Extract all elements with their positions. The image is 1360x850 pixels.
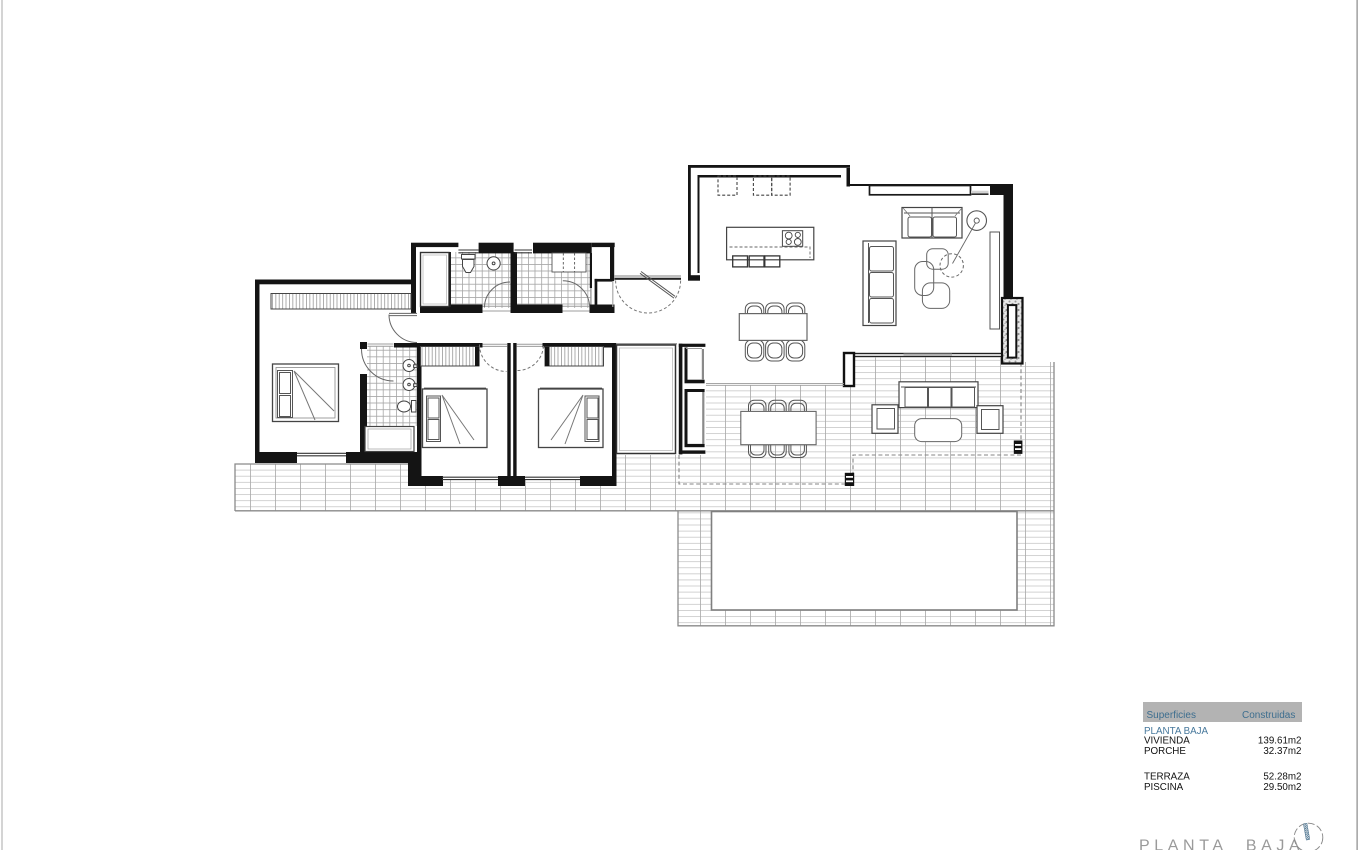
svg-text:32.37m2: 32.37m2 [1263, 746, 1301, 757]
svg-text:Superficies: Superficies [1147, 710, 1196, 721]
svg-text:29.50m2: 29.50m2 [1263, 782, 1301, 793]
svg-text:PORCHE: PORCHE [1144, 746, 1186, 757]
svg-text:Construidas: Construidas [1242, 710, 1295, 721]
svg-text:PLANTA BAJA: PLANTA BAJA [1139, 838, 1304, 850]
svg-text:VIVIENDA: VIVIENDA [1144, 736, 1190, 747]
svg-text:TERRAZA: TERRAZA [1144, 772, 1190, 783]
svg-text:PISCINA: PISCINA [1144, 782, 1184, 793]
svg-text:52.28m2: 52.28m2 [1263, 772, 1301, 783]
svg-text:139.61m2: 139.61m2 [1258, 736, 1302, 747]
